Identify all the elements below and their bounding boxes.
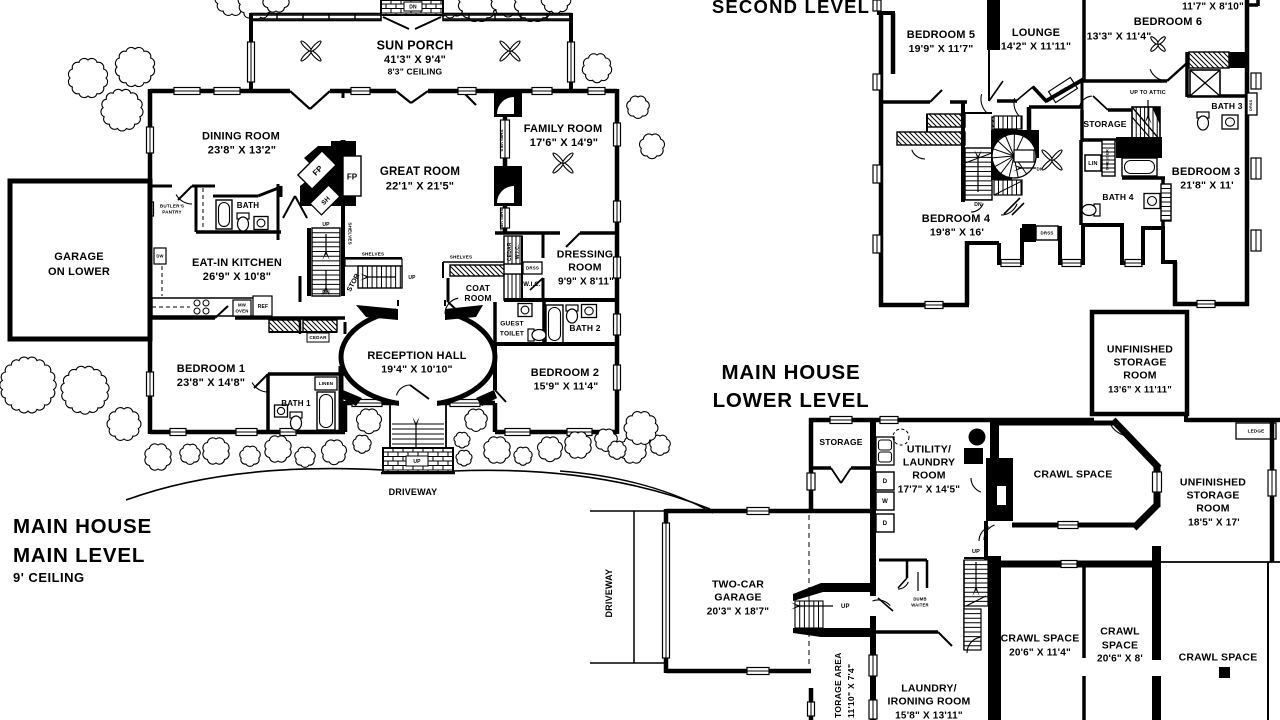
svg-text:SUN PORCH: SUN PORCH xyxy=(377,38,454,52)
svg-text:SHELVES: SHELVES xyxy=(499,208,504,231)
svg-text:D: D xyxy=(883,479,888,485)
svg-text:BEDROOM 2: BEDROOM 2 xyxy=(531,367,599,379)
svg-text:DINING ROOM: DINING ROOM xyxy=(202,130,280,142)
svg-text:STORAGE: STORAGE xyxy=(1113,357,1166,369)
svg-text:11'7" X 8'10": 11'7" X 8'10" xyxy=(1182,2,1244,13)
svg-text:LAUNDRY: LAUNDRY xyxy=(903,457,955,469)
svg-text:DRESSER: DRESSER xyxy=(1105,149,1110,170)
svg-text:26'9" X 10'8": 26'9" X 10'8" xyxy=(203,271,271,283)
svg-text:GREAT ROOM: GREAT ROOM xyxy=(380,166,460,178)
svg-text:17'7" X 14'5": 17'7" X 14'5" xyxy=(898,485,960,496)
svg-text:W: W xyxy=(882,499,888,505)
svg-text:IRONING ROOM: IRONING ROOM xyxy=(888,696,971,708)
svg-text:LINEN: LINEN xyxy=(319,381,334,386)
svg-text:MW: MW xyxy=(238,303,247,308)
svg-text:BATH 3: BATH 3 xyxy=(1211,101,1242,111)
svg-text:DRIVEWAY: DRIVEWAY xyxy=(389,487,438,497)
svg-text:ROOM: ROOM xyxy=(1196,503,1230,515)
svg-text:BATH 4: BATH 4 xyxy=(1102,192,1133,202)
svg-text:15'8" X 13'11": 15'8" X 13'11" xyxy=(895,711,963,720)
svg-text:17'6" X 14'9": 17'6" X 14'9" xyxy=(530,137,598,149)
svg-text:CRAWL SPACE: CRAWL SPACE xyxy=(1034,469,1113,481)
svg-text:BEDROOM 1: BEDROOM 1 xyxy=(177,363,245,375)
svg-text:STORAGE: STORAGE xyxy=(1186,490,1239,502)
svg-text:TORAGE AREA: TORAGE AREA xyxy=(833,652,843,718)
svg-text:9' CEILING: 9' CEILING xyxy=(13,570,85,585)
svg-text:18'5" X 17': 18'5" X 17' xyxy=(1188,518,1240,529)
svg-text:STORAGE: STORAGE xyxy=(819,437,862,447)
svg-text:CEDAR: CEDAR xyxy=(507,242,513,261)
svg-text:MAIN HOUSE: MAIN HOUSE xyxy=(13,515,152,538)
svg-text:SHELVES: SHELVES xyxy=(499,129,504,152)
svg-text:REF: REF xyxy=(258,304,269,310)
svg-text:SHELVES: SHELVES xyxy=(450,255,473,260)
svg-text:OVEN: OVEN xyxy=(236,309,249,314)
svg-text:UP TO ATTIC: UP TO ATTIC xyxy=(1130,90,1166,96)
svg-text:19'9" X 11'7": 19'9" X 11'7" xyxy=(909,43,974,55)
svg-text:23'8" X 14'8": 23'8" X 14'8" xyxy=(177,377,245,389)
svg-text:41'3" X 9'4": 41'3" X 9'4" xyxy=(384,54,446,66)
svg-text:STORAGE: STORAGE xyxy=(1083,119,1126,129)
svg-text:TWO-CAR: TWO-CAR xyxy=(712,579,764,591)
svg-text:W.I.C.: W.I.C. xyxy=(515,244,521,259)
svg-text:UP: UP xyxy=(322,222,330,228)
svg-text:SHELVES: SHELVES xyxy=(348,222,353,245)
svg-text:DRIVEWAY: DRIVEWAY xyxy=(604,569,614,618)
svg-text:RECEPTION HALL: RECEPTION HALL xyxy=(367,350,466,362)
svg-text:CRAWL: CRAWL xyxy=(1100,626,1140,638)
svg-text:23'8" X 13'2": 23'8" X 13'2" xyxy=(208,144,276,156)
svg-text:LOUNGE: LOUNGE xyxy=(1012,27,1060,39)
svg-text:LAUNDRY/: LAUNDRY/ xyxy=(901,683,956,695)
svg-text:22'1" X 21'5": 22'1" X 21'5" xyxy=(386,180,454,192)
svg-text:LIN: LIN xyxy=(1088,161,1097,167)
svg-text:UNFINISHED: UNFINISHED xyxy=(1107,344,1173,356)
svg-text:20'6" X 8': 20'6" X 8' xyxy=(1097,654,1143,665)
svg-text:BATH 2: BATH 2 xyxy=(569,323,600,333)
svg-text:20'6" X 11'4": 20'6" X 11'4" xyxy=(1009,648,1071,659)
svg-text:9'9" X 8'11": 9'9" X 8'11" xyxy=(558,277,614,288)
svg-text:14'2" X 11'11": 14'2" X 11'11" xyxy=(1001,41,1071,53)
svg-text:DRESSING: DRESSING xyxy=(557,249,613,261)
svg-text:TOILET: TOILET xyxy=(500,330,524,337)
svg-text:LOWER LEVEL: LOWER LEVEL xyxy=(713,389,870,412)
svg-text:DW: DW xyxy=(156,253,163,258)
svg-text:UP: UP xyxy=(972,549,980,555)
svg-text:GARAGE: GARAGE xyxy=(714,592,761,604)
svg-text:ROOM: ROOM xyxy=(568,262,602,274)
svg-text:BEDROOM 6: BEDROOM 6 xyxy=(1134,16,1202,28)
svg-text:DRSS: DRSS xyxy=(1249,99,1253,111)
svg-text:DN: DN xyxy=(409,4,417,10)
svg-text:PANTRY: PANTRY xyxy=(162,210,182,215)
svg-text:21'8" X 11': 21'8" X 11' xyxy=(1180,180,1234,192)
svg-text:CRAWL SPACE: CRAWL SPACE xyxy=(1001,633,1080,645)
svg-text:EAT-IN KITCHEN: EAT-IN KITCHEN xyxy=(192,257,282,269)
svg-text:ROOM: ROOM xyxy=(912,470,946,482)
svg-text:DRSS: DRSS xyxy=(526,266,539,271)
svg-text:19'8" X 16': 19'8" X 16' xyxy=(930,227,984,239)
svg-text:ROOM: ROOM xyxy=(464,293,491,303)
svg-text:BUTLER'S: BUTLER'S xyxy=(160,204,184,209)
svg-text:CEDAR: CEDAR xyxy=(309,335,327,340)
svg-text:UP: UP xyxy=(413,459,421,465)
svg-text:20'3" X 18'7": 20'3" X 18'7" xyxy=(707,607,769,618)
svg-text:11'10" X 7'4": 11'10" X 7'4" xyxy=(846,664,856,718)
svg-text:BEDROOM 4: BEDROOM 4 xyxy=(922,213,991,225)
svg-text:13'6" X 11'11": 13'6" X 11'11" xyxy=(1108,384,1172,395)
svg-text:UNFINISHED: UNFINISHED xyxy=(1180,477,1246,489)
svg-text:CRAWL SPACE: CRAWL SPACE xyxy=(1179,652,1258,664)
svg-text:19'4" X 10'10": 19'4" X 10'10" xyxy=(381,364,452,376)
svg-text:BEDROOM 3: BEDROOM 3 xyxy=(1172,166,1240,178)
svg-text:COAT: COAT xyxy=(466,283,491,293)
svg-text:MAIN LEVEL: MAIN LEVEL xyxy=(13,544,145,567)
svg-text:BATH 1: BATH 1 xyxy=(281,399,311,408)
svg-text:ROOM: ROOM xyxy=(1123,370,1157,382)
svg-text:8'3" CEILING: 8'3" CEILING xyxy=(388,66,443,76)
svg-text:DRSS: DRSS xyxy=(1041,231,1054,236)
svg-text:MAIN HOUSE: MAIN HOUSE xyxy=(722,361,861,384)
svg-text:BEDROOM 5: BEDROOM 5 xyxy=(907,29,975,41)
svg-text:SHELVES: SHELVES xyxy=(362,252,385,257)
svg-text:UTILITY/: UTILITY/ xyxy=(907,444,951,456)
svg-text:FP: FP xyxy=(347,173,358,182)
svg-text:DN: DN xyxy=(322,290,330,296)
svg-text:UP: UP xyxy=(841,604,850,610)
svg-text:LEDGE: LEDGE xyxy=(1248,429,1265,434)
svg-text:BATH: BATH xyxy=(237,201,259,210)
svg-text:D: D xyxy=(883,521,888,527)
svg-text:ON LOWER: ON LOWER xyxy=(48,266,110,278)
svg-text:WAITER: WAITER xyxy=(911,602,928,607)
svg-text:15'9" X 11'4": 15'9" X 11'4" xyxy=(534,381,599,393)
svg-text:13'3" X 11'4": 13'3" X 11'4" xyxy=(1087,31,1152,43)
svg-text:UP: UP xyxy=(408,275,416,281)
svg-text:FAMILY ROOM: FAMILY ROOM xyxy=(524,123,603,135)
svg-text:DUMB: DUMB xyxy=(913,596,926,601)
svg-text:GARAGE: GARAGE xyxy=(54,251,103,263)
svg-text:SECOND LEVEL: SECOND LEVEL xyxy=(712,0,870,17)
svg-text:SPACE: SPACE xyxy=(1102,640,1138,652)
svg-text:GUEST: GUEST xyxy=(500,320,523,327)
